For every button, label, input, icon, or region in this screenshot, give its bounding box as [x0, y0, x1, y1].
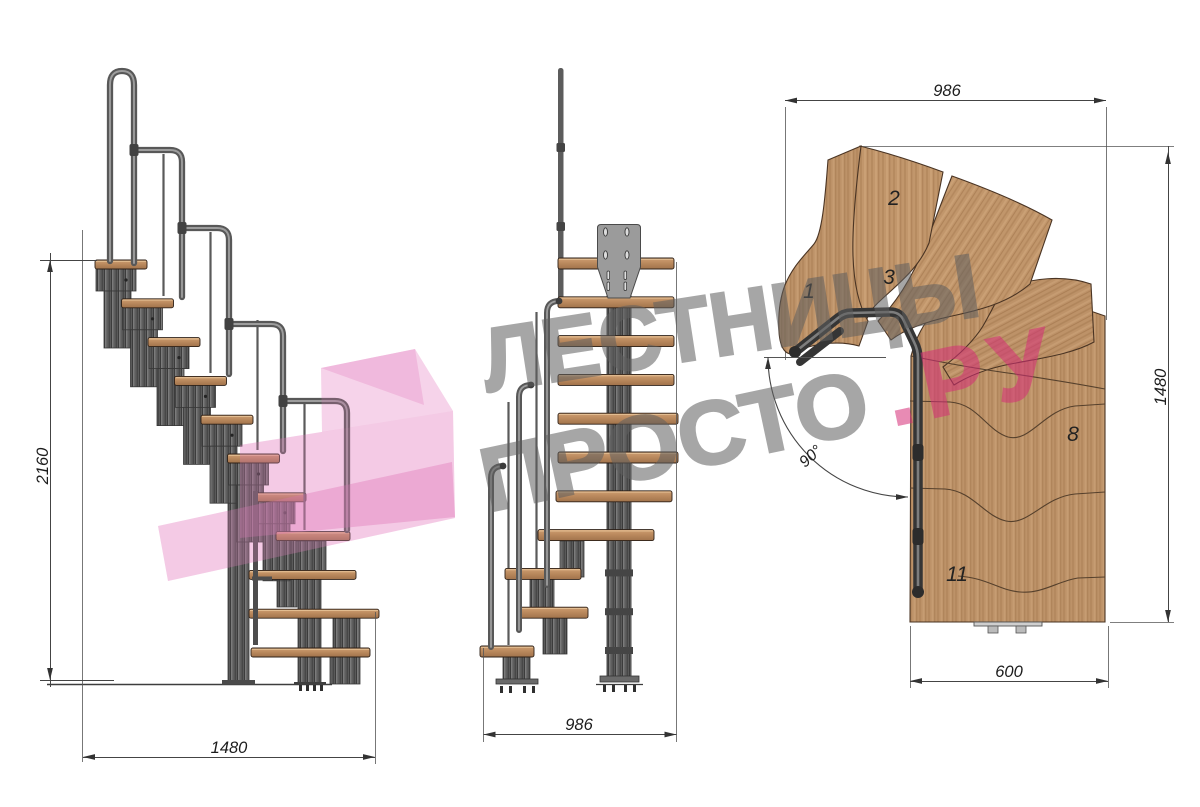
svg-text:986: 986 — [933, 82, 961, 100]
svg-text:2160: 2160 — [34, 447, 52, 486]
svg-text:1480: 1480 — [1152, 368, 1170, 406]
svg-text:2: 2 — [887, 187, 900, 210]
svg-text:600: 600 — [995, 663, 1023, 681]
svg-text:8: 8 — [1067, 423, 1079, 446]
svg-text:1480: 1480 — [211, 739, 249, 757]
svg-text:11: 11 — [946, 563, 968, 586]
svg-text:986: 986 — [565, 716, 593, 734]
